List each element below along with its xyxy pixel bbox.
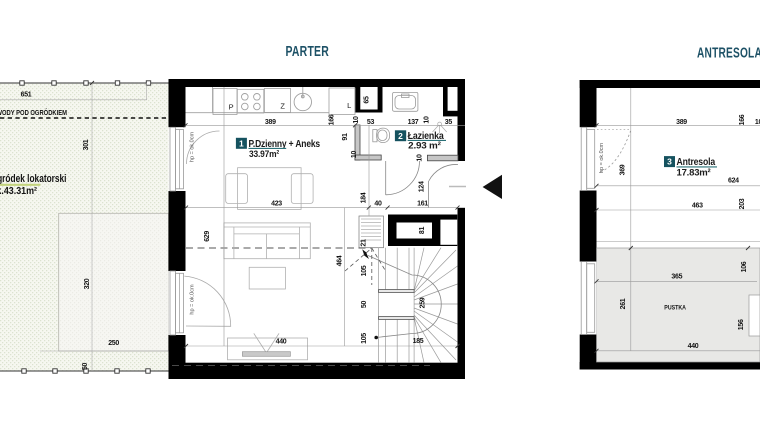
svg-text:PARTER: PARTER: [286, 44, 330, 60]
svg-text:261: 261: [620, 298, 627, 309]
svg-text:PUSTKA: PUSTKA: [664, 306, 686, 312]
svg-text:17.83m²: 17.83m²: [677, 167, 711, 178]
svg-text:53: 53: [367, 119, 375, 126]
svg-text:250: 250: [108, 340, 119, 347]
svg-text:389: 389: [676, 119, 687, 126]
svg-text:10: 10: [424, 116, 431, 124]
svg-text:10: 10: [417, 154, 424, 162]
svg-text:hp = ok.0cm: hp = ok.0cm: [599, 143, 605, 174]
svg-text:440: 440: [276, 339, 287, 346]
svg-text:Antresola: Antresola: [677, 156, 716, 168]
svg-text:185: 185: [413, 338, 424, 345]
svg-text:365: 365: [671, 274, 682, 281]
svg-text:40: 40: [374, 200, 382, 207]
svg-text:203: 203: [739, 198, 746, 209]
svg-text:21: 21: [361, 239, 368, 247]
svg-text:463: 463: [692, 202, 703, 209]
svg-text:81: 81: [419, 227, 426, 235]
svg-text:10: 10: [755, 119, 760, 126]
svg-text:423: 423: [271, 201, 282, 208]
svg-text:35: 35: [445, 119, 453, 126]
svg-text:464: 464: [337, 255, 344, 266]
svg-text:184: 184: [361, 192, 368, 203]
svg-text:259: 259: [419, 297, 426, 308]
svg-text:105: 105: [361, 265, 368, 276]
svg-text:ANTRESOLA: ANTRESOLA: [697, 46, 760, 62]
svg-text:2.93 m²: 2.93 m²: [408, 141, 441, 152]
svg-text:ogródek lokatorski: ogródek lokatorski: [0, 173, 67, 185]
svg-text:166: 166: [329, 114, 336, 125]
svg-text:389: 389: [265, 119, 276, 126]
svg-text:WODY POD OGRÓDKIEM: WODY POD OGRÓDKIEM: [0, 108, 67, 117]
svg-text:156: 156: [738, 319, 745, 330]
svg-text:1: 1: [239, 138, 244, 148]
svg-text:105: 105: [361, 333, 368, 344]
svg-text:50: 50: [82, 363, 89, 371]
svg-text:440: 440: [688, 343, 699, 350]
svg-text:91: 91: [342, 133, 349, 141]
svg-text:hp = ok.0cm: hp = ok.0cm: [190, 284, 196, 315]
svg-text:166: 166: [739, 114, 746, 125]
svg-text:65: 65: [364, 96, 371, 104]
svg-text:369: 369: [620, 164, 627, 175]
svg-text:10: 10: [353, 116, 360, 124]
svg-text:106: 106: [741, 261, 748, 272]
svg-text:33.97m²: 33.97m²: [249, 149, 279, 160]
svg-text:137: 137: [408, 119, 419, 126]
svg-text:P: P: [229, 103, 234, 112]
svg-text:3: 3: [667, 157, 672, 167]
svg-text:651: 651: [21, 92, 32, 99]
svg-text:hp = ok.0cm: hp = ok.0cm: [190, 132, 196, 163]
svg-text:2: 2: [398, 131, 403, 141]
svg-text:629: 629: [204, 231, 211, 242]
svg-text:Z: Z: [280, 102, 285, 111]
svg-text:50: 50: [361, 301, 368, 309]
svg-text:10: 10: [351, 151, 358, 159]
svg-text:161: 161: [417, 200, 428, 207]
svg-text:624: 624: [728, 178, 739, 185]
svg-text:L: L: [347, 101, 351, 110]
svg-text:124: 124: [419, 181, 426, 192]
svg-text:301: 301: [83, 139, 90, 150]
svg-text:ok.43.31m²: ok.43.31m²: [0, 185, 37, 197]
svg-text:320: 320: [84, 278, 91, 289]
